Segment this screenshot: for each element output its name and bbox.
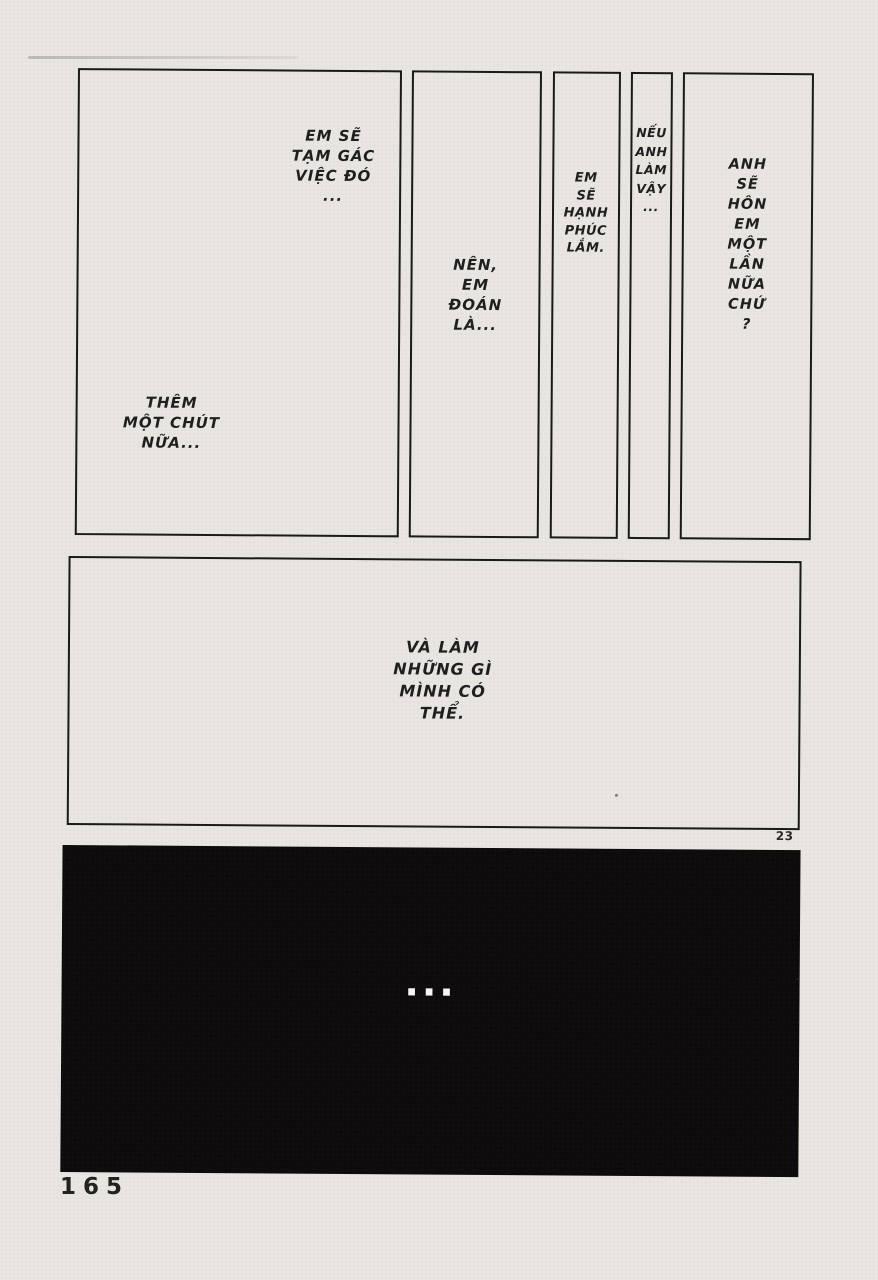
corner-page-number: 23: [771, 829, 799, 843]
panel-1: EM SẼ TẠM GÁC VIỆC ĐÓ ... THÊM MỘT CHÚT …: [75, 68, 402, 537]
speech-text-panel2: NÊN, EM ĐOÁN LÀ...: [412, 254, 539, 335]
speech-text-panel6: VÀ LÀM NHỮNG GÌ MÌNH CÓ THỂ.: [337, 636, 548, 725]
panel-2: NÊN, EM ĐOÁN LÀ...: [409, 70, 542, 538]
scan-speck: [797, 978, 799, 980]
panel-4: NẾU ANH LÀM VẬY ...: [628, 72, 673, 539]
ellipsis-text-black-panel: ...: [370, 963, 490, 1002]
scan-speck: [615, 794, 618, 797]
comic-page-sheet: EM SẼ TẠM GÁC VIỆC ĐÓ ... THÊM MỘT CHÚT …: [60, 68, 814, 1185]
speech-text-panel5: ANH SẼ HÔN EM MỘT LẦN NỮA CHỨ ?: [683, 154, 811, 335]
speech-text-panel1-top: EM SẼ TẠM GÁC VIỆC ĐÓ ...: [261, 125, 406, 206]
scan-artifact-streak: [28, 56, 298, 59]
speech-text-panel4: NẾU ANH LÀM VẬY ...: [632, 124, 671, 217]
panel-7-black: ...: [60, 845, 800, 1177]
panel-6: VÀ LÀM NHỮNG GÌ MÌNH CÓ THỂ.: [67, 556, 802, 830]
panel-3: EM SẼ HẠNH PHÚC LẮM.: [550, 71, 621, 538]
speech-text-panel3: EM SẼ HẠNH PHÚC LẮM.: [554, 169, 619, 257]
page-number: 165: [60, 1174, 129, 1200]
speech-text-panel1-bottom: THÊM MỘT CHÚT NỮA...: [97, 392, 245, 453]
panel-5: ANH SẼ HÔN EM MỘT LẦN NỮA CHỨ ?: [680, 72, 814, 540]
